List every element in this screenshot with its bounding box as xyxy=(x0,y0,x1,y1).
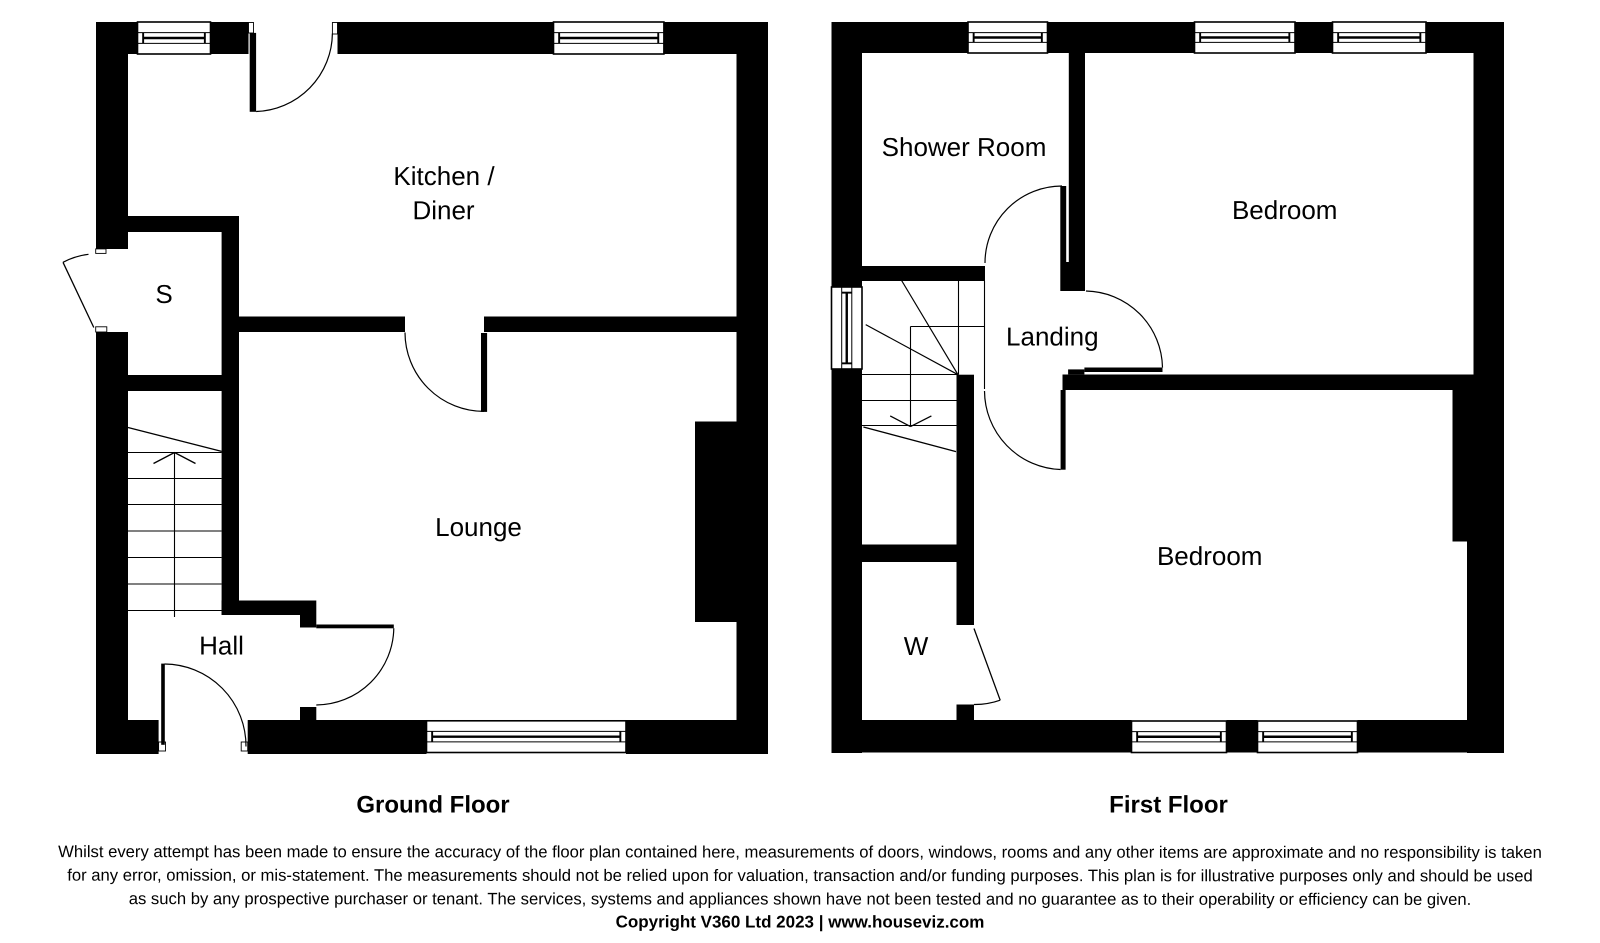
svg-text:Landing: Landing xyxy=(1006,321,1099,351)
svg-text:Hall: Hall xyxy=(199,630,244,660)
svg-text:Bedroom: Bedroom xyxy=(1232,195,1338,225)
svg-text:as such by any prospective pur: as such by any prospective purchaser or … xyxy=(129,889,1472,909)
svg-text:Shower Room: Shower Room xyxy=(882,132,1047,162)
svg-text:Bedroom: Bedroom xyxy=(1157,541,1263,571)
svg-text:Diner: Diner xyxy=(412,195,474,225)
svg-text:W: W xyxy=(904,631,929,661)
svg-text:First Floor: First Floor xyxy=(1109,791,1228,818)
svg-text:Ground Floor: Ground Floor xyxy=(356,791,509,818)
svg-text:Whilst every attempt has been: Whilst every attempt has been made to en… xyxy=(58,842,1542,862)
svg-text:for any error, omission, or mi: for any error, omission, or mis-statemen… xyxy=(67,866,1533,886)
svg-text:Lounge: Lounge xyxy=(435,512,522,542)
svg-text:S: S xyxy=(155,279,172,309)
svg-text:Copyright V360 Ltd 2023 | www.: Copyright V360 Ltd 2023 | www.houseviz.c… xyxy=(616,912,985,931)
svg-text:Kitchen /: Kitchen / xyxy=(393,161,495,191)
